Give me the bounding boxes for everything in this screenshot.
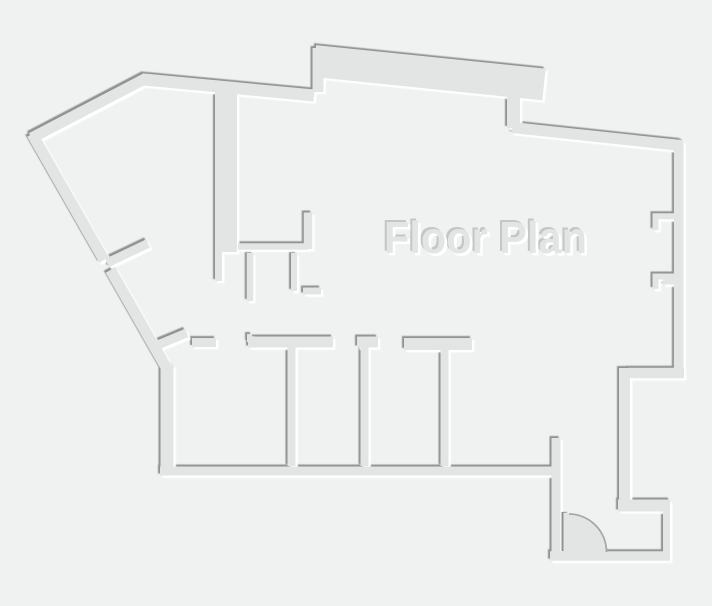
svg-text:Floor Plan: Floor Plan (384, 214, 587, 263)
